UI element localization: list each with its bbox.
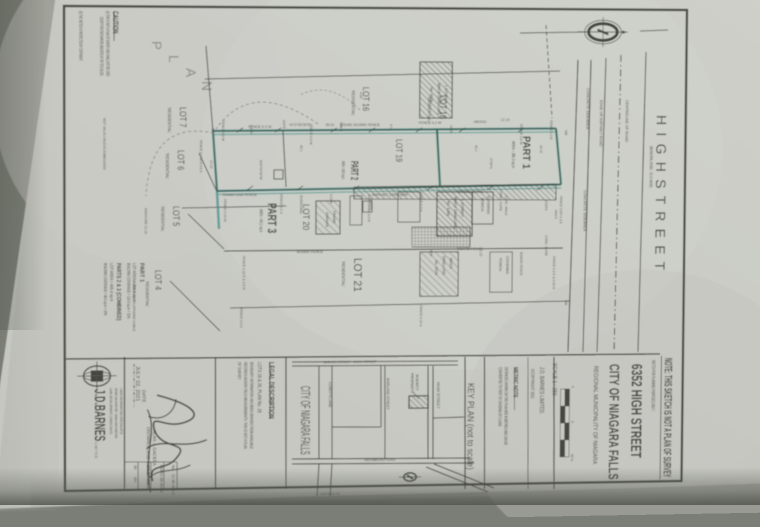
svg-text:'RESIDENTIAL': 'RESIDENTIAL' [351,90,356,116]
svg-text:LEGAL DESCRIPTION: LEGAL DESCRIPTION [267,362,276,419]
svg-text:GARAGE: GARAGE [325,212,329,228]
svg-text:METRIC NOTE: METRIC NOTE [512,367,519,398]
svg-text:FENCE 0.2 S: FENCE 0.2 S [279,194,283,215]
svg-text:36.91: 36.91 [325,123,334,127]
svg-text:PARTS 2 & 3 (COMBINED): PARTS 2 & 3 (COMBINED) [115,263,122,321]
svg-text:BARKER STREET - DUNN STREET: BARKER STREET - DUNN STREET [324,360,377,365]
svg-text:L: L [166,55,182,63]
svg-text:A: A [183,68,198,77]
svg-text:ALAN J. GACESA: ALAN J. GACESA [152,430,157,466]
svg-text:SUBJECT: SUBJECT [415,374,419,391]
svg-text:12.19: 12.19 [500,118,509,122]
svg-text:(MUNICIPAL ROAD - 20.12 WIDE: (MUNICIPAL ROAD - 20.12 WIDE) [649,146,654,188]
svg-text:0779/1002: 0779/1002 [146,472,150,490]
svg-text:J.D.BARNES: J.D.BARNES [91,389,108,442]
svg-text:LAND INFORMATION SPECIALISTS: LAND INFORMATION SPECIALISTS [119,388,123,434]
svg-text:P: P [149,41,165,50]
svg-text:ONTARIO LAND SURVEYORS · CANAD: ONTARIO LAND SURVEYORS · CANADA LANDS SU… [114,388,118,438]
svg-text:'RESIDENTIAL': 'RESIDENTIAL' [167,107,172,134]
svg-text:18.29: 18.29 [449,125,453,133]
svg-text:LOT 4: LOT 4 [153,270,163,290]
svg-text:21-36-404-0: 21-36-404-0 [171,474,175,495]
svg-text:PORTAGE RD: PORTAGE RD [320,492,341,496]
svg-text:BOUNDARY INFORMATION HAS BEEN: BOUNDARY INFORMATION HAS BEEN DERIVED FR… [249,362,254,449]
svg-text:BRICK: BRICK [449,258,453,270]
svg-text:N16°54'30"W: N16°54'30"W [259,160,263,181]
svg-text:(B) THE SKETCH IS PROTECTED B: (B) THE SKETCH IS PROTECTED BY COPYRIGHT… [78,11,83,61]
svg-text:'RESIDENTIAL': 'RESIDENTIAL' [165,153,170,180]
svg-text:FENCE 0.4 W: FENCE 0.4 W [309,124,313,146]
svg-text:LOT AREA = 465.4 sq.m: LOT AREA = 465.4 sq.m [109,263,114,302]
svg-text:COVERED: COVERED [505,256,509,274]
svg-text:COVERED: COVERED [486,196,490,215]
svg-text:FENCE 0.3 E & 0.05 N: FENCE 0.3 E & 0.05 N [552,256,556,290]
svg-text:LOT 19: LOT 19 [394,139,404,162]
svg-text:0.3 W: 0.3 W [249,125,253,135]
svg-text:BOARD FENCE: BOARD FENCE [519,252,523,276]
svg-text:0.15 N: 0.15 N [329,194,333,204]
svg-text:©COPYRIGHT 2021: ©COPYRIGHT 2021 [529,369,535,399]
svg-text:CAUTION: CAUTION [111,11,120,34]
svg-text:FENCE 0.3 S: FENCE 0.3 S [239,308,243,329]
svg-text:(REAR) BOARD FENCE: (REAR) BOARD FENCE [340,123,381,127]
svg-text:JN: JN [133,465,137,470]
svg-text:GRAVEL DRIVE: GRAVEL DRIVE [457,190,484,194]
svg-text:CONC. WALK: CONC. WALK [504,195,508,216]
svg-text:OVERHEAD TELEPHONE CABLE: OVERHEAD TELEPHONE CABLE [132,280,136,332]
svg-text:CONCRETE SIDEWALK: CONCRETE SIDEWALK [583,190,587,232]
svg-text:FENCE 0.3 W # 0.9 S: FENCE 0.3 W # 0.9 S [199,140,203,173]
svg-text:AREA = 385.3 sq.m: AREA = 385.3 sq.m [511,141,516,168]
svg-text:FENCE 0.3 W: FENCE 0.3 W [221,120,225,142]
svg-text:STEPS: STEPS [544,200,548,212]
svg-text:N: N [199,81,214,91]
svg-text:21-36-404-0: 21-36-404-0 [159,472,163,493]
svg-text:LOT 18: LOT 18 [438,95,448,119]
svg-text:AREA = 419.5 sq.m: AREA = 419.5 sq.m [341,161,346,179]
svg-text:ASPHALT DRIVEWAY: ASPHALT DRIVEWAY [372,193,409,197]
svg-text:OVERHANG 0.3 N: OVERHANG 0.3 N [367,194,371,222]
svg-text:SIB: SIB [564,130,568,136]
svg-text:DRUMMOND ROAD: DRUMMOND ROAD [364,458,396,462]
svg-text:45.1: 45.1 [299,145,303,152]
svg-text:5: 5 [571,386,575,388]
svg-text:NOTE: THIS SKETCH IS NOT A PLA: NOTE: THIS SKETCH IS NOT A PLAN OF SURVE… [661,358,674,478]
svg-text:No. 6346: No. 6346 [446,201,450,216]
svg-text:'RESIDENTIAL': 'RESIDENTIAL' [160,206,165,232]
svg-text:'RESIDENTIAL': 'RESIDENTIAL' [427,96,432,122]
svg-text:EXCEPT FOR THE PURPOSE INDICAT: EXCEPT FOR THE PURPOSE INDICATED IN THE … [99,17,104,76]
svg-text:4.88: 4.88 [359,92,363,99]
svg-text:CENTRELINE OF ROAD: CENTRELINE OF ROAD [625,100,629,142]
svg-text:CITY OF NIAGARA FALLS: CITY OF NIAGARA FALLS [606,364,623,480]
svg-text:FENCE 0.2 W: FENCE 0.2 W [419,121,442,125]
svg-text:12.19: 12.19 [209,160,213,169]
svg-text:FENCE 0.15 S: FENCE 0.15 S [419,305,423,327]
svg-text:6352 HIGH STREET: 6352 HIGH STREET [627,364,645,458]
svg-text:LOT 5: LOT 5 [171,206,181,226]
svg-text:REGIONAL MUNICIPALITY OF NIAGA: REGIONAL MUNICIPALITY OF NIAGARA [591,366,599,465]
svg-text:FENCE 0.3 S: FENCE 0.3 S [419,192,423,213]
svg-text:KEY PLAN (not to scale): KEY PLAN (not to scale) [465,383,476,470]
svg-text:LAND DEVELOPMENT CONSULTANTS: LAND DEVELOPMENT CONSULTANTS [109,388,113,434]
svg-text:BUILDING COVERAGE = 88.4 sq.m: BUILDING COVERAGE = 88.4 sq.m = 19% [103,263,108,316]
svg-text:AH: AH [133,477,137,483]
svg-text:SHED: SHED [339,122,343,132]
svg-text:RECORDS AND/OR FIELD MEASUREME: RECORDS AND/OR FIELD MEASUREMENTS. THIS … [243,362,248,449]
svg-text:OF SURVEY.: OF SURVEY. [237,362,242,380]
svg-text:No.: No. [171,465,175,471]
svg-text:BOARD FENCE: BOARD FENCE [297,250,324,254]
svg-text:LOT 21: LOT 21 [351,258,363,292]
svg-text:CONC. CURB: CONC. CURB [544,235,548,257]
svg-text:N73°05'30"E: N73°05'30"E [290,123,311,127]
svg-text:'RESIDENTIAL': 'RESIDENTIAL' [145,281,150,307]
svg-text:J.D. BARNES LIMITED.: J.D. BARNES LIMITED. [538,367,545,415]
svg-text:BRICK DWELLING: BRICK DWELLING [453,197,457,229]
svg-text:PORCH: PORCH [498,258,502,272]
svg-text:AREA = 461.1 sq.m: AREA = 461.1 sq.m [259,209,264,232]
svg-text:LOTS 16 & 26, PLAN No. 29: LOTS 16 & 26, PLAN No. 29 [256,362,262,413]
svg-text:JULY 02, 2021: JULY 02, 2021 [134,366,140,401]
svg-text:PORCH: PORCH [480,198,484,212]
svg-text:FENCE 0.15 E & 0.9 N: FENCE 0.15 E & 0.9 N [242,256,246,290]
svg-text:CITY OF NIAGARA FALLS: CITY OF NIAGARA FALLS [298,386,313,455]
svg-text:GATE: GATE [282,120,286,130]
svg-text:20.12: 20.12 [539,145,543,153]
svg-text:4.88: 4.88 [429,250,433,257]
svg-text:10 m: 10 m [570,454,574,462]
svg-text:NOT VALID UNLESS EMBOSSED: NOT VALID UNLESS EMBOSSED [102,118,106,170]
svg-text:CHAIN LINK FENCE: CHAIN LINK FENCE [223,193,258,197]
svg-text:BUILDING COVERAGE = 119.5 sq.m: BUILDING COVERAGE = 119.5 sq.m = 31% [126,263,131,319]
svg-text:'RESIDENTIAL': 'RESIDENTIAL' [341,261,346,287]
svg-text:PART 3: PART 3 [265,203,279,233]
svg-text:PART 2: PART 2 [348,161,360,180]
svg-text:EDGE OF ASPHALT ROAD: EDGE OF ASPHALT ROAD [599,100,603,147]
svg-text:HEDGE: HEDGE [474,120,487,124]
svg-text:45.1: 45.1 [474,145,478,152]
svg-text:FENCE 0.3 E: FENCE 0.3 E [549,120,553,141]
svg-text:H I G H S T R E E T: H I G H S T R E E T [652,115,669,272]
svg-text:HIGH STREET: HIGH STREET [436,382,441,409]
svg-text:DWELLING: DWELLING [442,256,446,275]
svg-text:CONCRETE SIDEWALK: CONCRETE SIDEWALK [586,88,590,130]
svg-text:SIB: SIB [564,300,568,306]
svg-text:SCALE 1 : 250: SCALE 1 : 250 [551,363,558,396]
svg-text:FRAME: FRAME [332,211,336,224]
svg-text:PART 1: PART 1 [138,263,145,283]
svg-text:0: 0 [570,421,574,423]
svg-text:PROPERTY: PROPERTY [410,373,414,394]
svg-text:CONVERTED TO FEET BY DIVIDING: CONVERTED TO FEET BY DIVIDING BY 0.3048 [498,367,503,427]
svg-text:LUNDY'S LANE: LUNDY'S LANE [328,382,332,408]
svg-text:SKETCH FOR PLANNING PURPOSES O: SKETCH FOR PLANNING PURPOSES ONLY ! [649,360,655,411]
svg-text:CONC. CURB: CONC. CURB [499,190,503,212]
svg-text:FENCE 0.6 W: FENCE 0.6 W [519,124,523,146]
svg-text:LOT 7: LOT 7 [178,107,188,127]
svg-text:OVERHANG: OVERHANG [299,195,303,214]
svg-text:DASHLINE 12.19: DASHLINE 12.19 [144,208,148,234]
svg-text:LOT 6: LOT 6 [176,150,186,170]
svg-text:FENCE 0.15 W: FENCE 0.15 W [223,199,227,223]
svg-text:MARLAND STREET: MARLAND STREET [386,378,390,411]
svg-text:(A) THIS IS NOT A PLAN OF SUR: (A) THIS IS NOT A PLAN OF SURVEY AND SHA… [105,11,110,77]
svg-text:LOT 16: LOT 16 [361,87,371,111]
svg-text:FENCE COR 0.3 E: FENCE COR 0.3 E [559,196,563,225]
svg-text:L I M I T E D: L I M I T E D [94,442,98,459]
svg-text:WALK: WALK [554,210,558,220]
svg-text:DISTANCES SHOWN ON THIS PLAN A: DISTANCES SHOWN ON THIS PLAN ARE IN METR… [503,367,509,445]
svg-text:9.14: 9.14 [389,124,393,131]
svg-text:1 STOREY: 1 STOREY [460,199,464,218]
svg-text:STEPS: STEPS [489,158,493,170]
svg-text:1.22: 1.22 [479,250,483,257]
svg-text:No. 6324: No. 6324 [434,260,438,275]
